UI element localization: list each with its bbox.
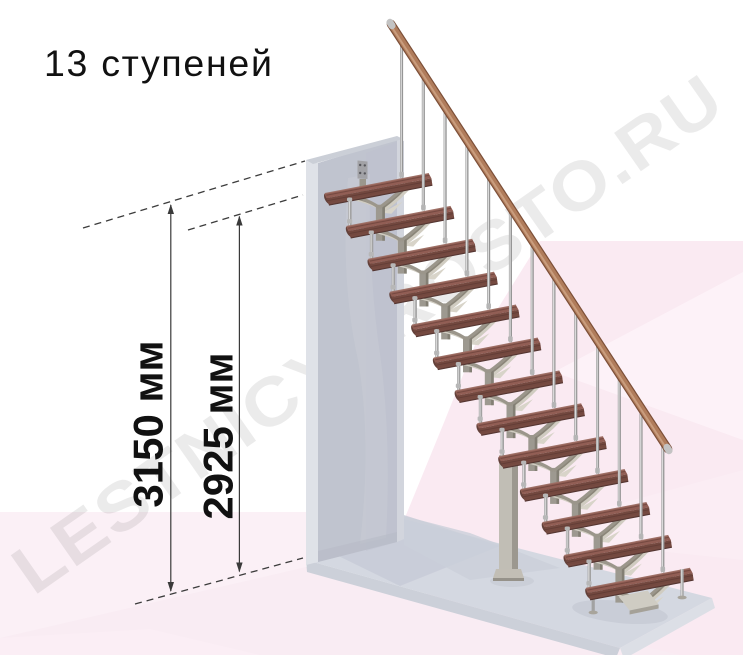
svg-text:2925 мм: 2925 мм <box>195 352 242 519</box>
svg-text:3150 мм: 3150 мм <box>125 340 172 507</box>
svg-text:13 ступеней: 13 ступеней <box>44 42 274 84</box>
